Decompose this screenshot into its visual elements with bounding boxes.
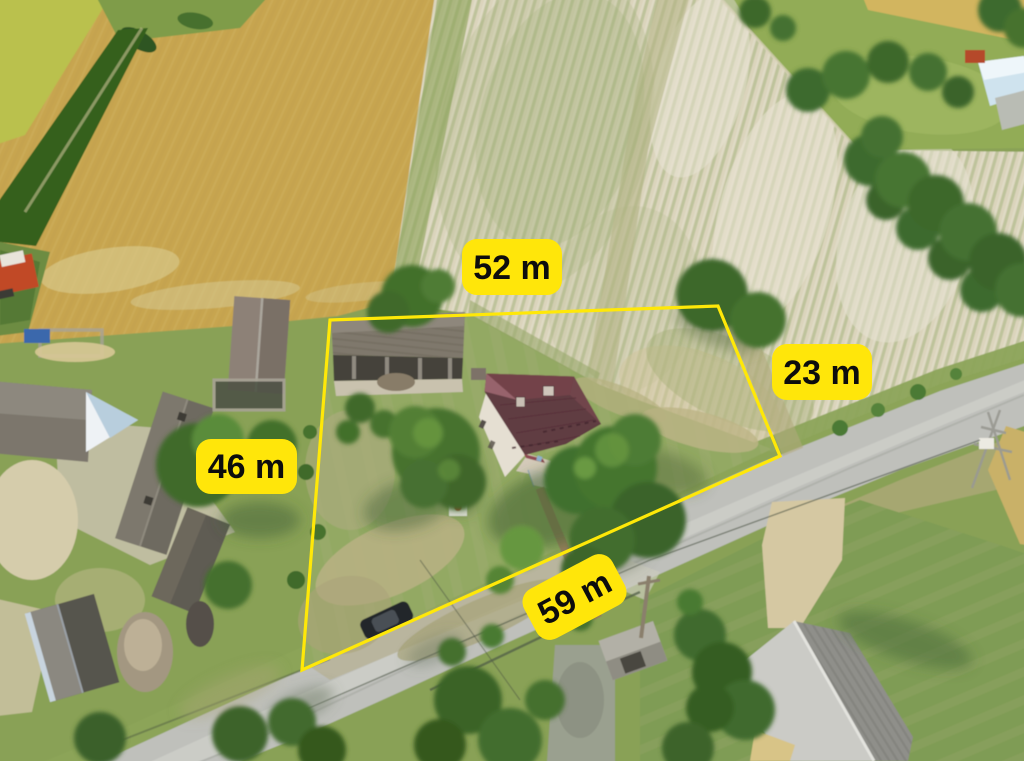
svg-text:52 m: 52 m bbox=[473, 249, 551, 287]
svg-text:46 m: 46 m bbox=[208, 448, 286, 486]
svg-text:23 m: 23 m bbox=[783, 354, 861, 392]
